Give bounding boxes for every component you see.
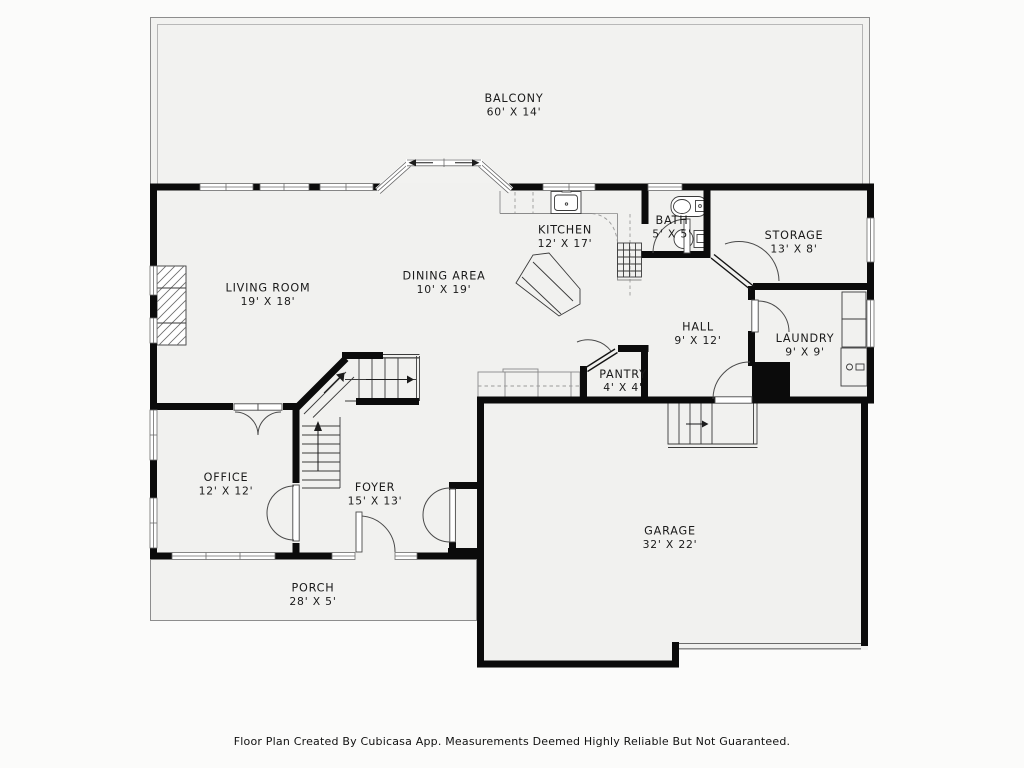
window <box>320 184 373 191</box>
label-office: OFFICE <box>204 471 249 484</box>
dims-living-room: 19' X 18' <box>241 295 296 308</box>
footer-disclaimer: Floor Plan Created By Cubicasa App. Meas… <box>0 735 1024 748</box>
label-garage: GARAGE <box>644 525 696 538</box>
window <box>648 184 682 191</box>
dims-laundry: 9' X 9' <box>785 346 825 359</box>
dims-kitchen: 12' X 17' <box>538 237 593 250</box>
dims-foyer: 15' X 13' <box>348 495 403 508</box>
dims-porch: 28' X 5' <box>289 595 336 608</box>
label-pantry: PANTRY <box>599 368 647 381</box>
label-bath: BATH <box>656 214 689 227</box>
window <box>543 184 595 191</box>
label-kitchen: KITCHEN <box>538 224 592 237</box>
window <box>150 266 157 295</box>
window <box>150 318 157 343</box>
dims-hall: 9' X 12' <box>674 334 721 347</box>
dims-bath: 5' X 5' <box>652 228 692 241</box>
label-storage: STORAGE <box>765 229 824 242</box>
chimney-block <box>752 362 790 403</box>
garage-door <box>679 643 861 650</box>
window <box>867 218 874 262</box>
label-balcony: BALCONY <box>485 92 544 105</box>
window <box>395 553 417 560</box>
dims-dining-area: 10' X 19' <box>417 283 472 296</box>
label-dining-area: DINING AREA <box>402 270 485 283</box>
label-laundry: LAUNDRY <box>776 332 835 345</box>
window <box>332 553 355 560</box>
floor-plan-canvas: BALCONY 60' X 14' LIVING ROOM 19' X 18' … <box>0 0 1024 768</box>
window <box>172 553 275 560</box>
label-porch: PORCH <box>292 582 335 595</box>
label-hall: HALL <box>682 321 714 334</box>
dims-office: 12' X 12' <box>199 485 254 498</box>
window <box>260 184 309 191</box>
dims-storage: 13' X 8' <box>770 243 817 256</box>
label-living-room: LIVING ROOM <box>226 282 311 295</box>
window <box>150 498 157 548</box>
label-foyer: FOYER <box>355 481 395 494</box>
dims-garage: 32' X 22' <box>643 538 698 551</box>
window <box>150 410 157 460</box>
dims-pantry: 4' X 4' <box>603 381 643 394</box>
dims-balcony: 60' X 14' <box>487 106 542 119</box>
window <box>867 300 874 347</box>
window <box>200 184 253 191</box>
fireplace <box>157 266 186 345</box>
